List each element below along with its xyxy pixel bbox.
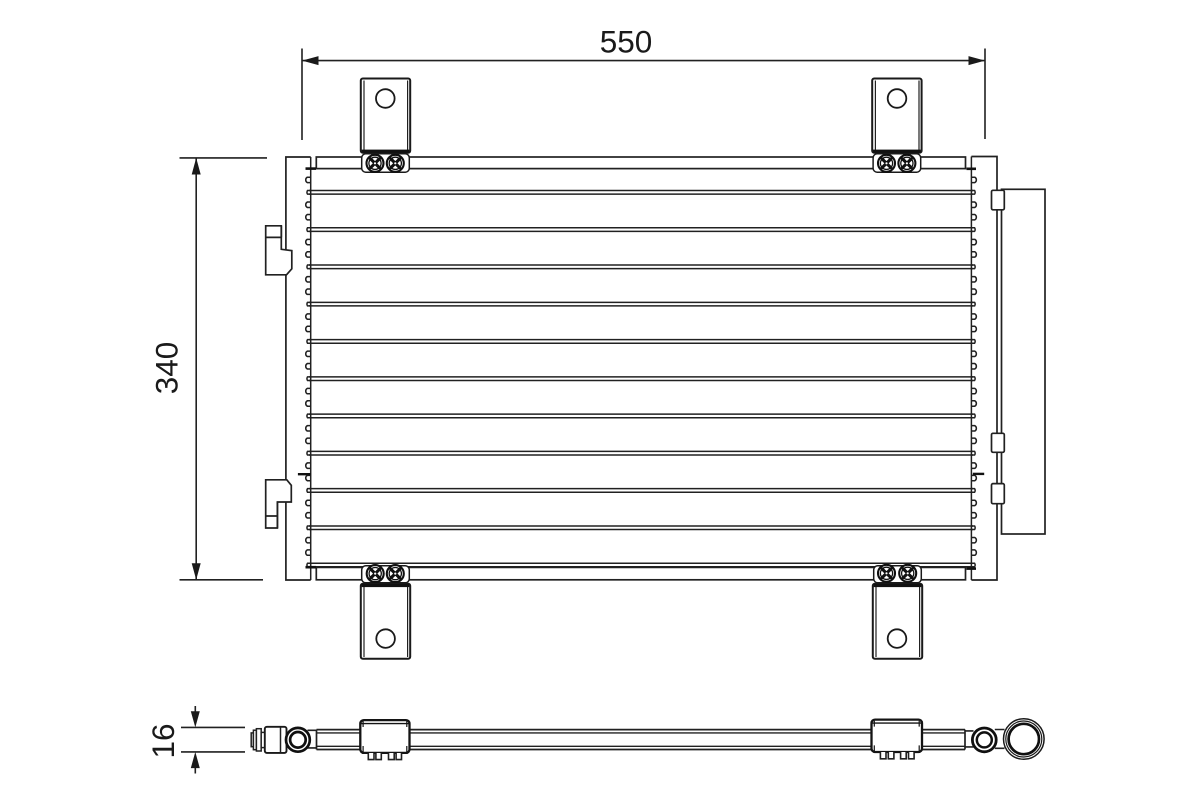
svg-text:340: 340 (149, 342, 185, 395)
svg-text:16: 16 (145, 723, 181, 758)
svg-text:550: 550 (600, 24, 653, 60)
